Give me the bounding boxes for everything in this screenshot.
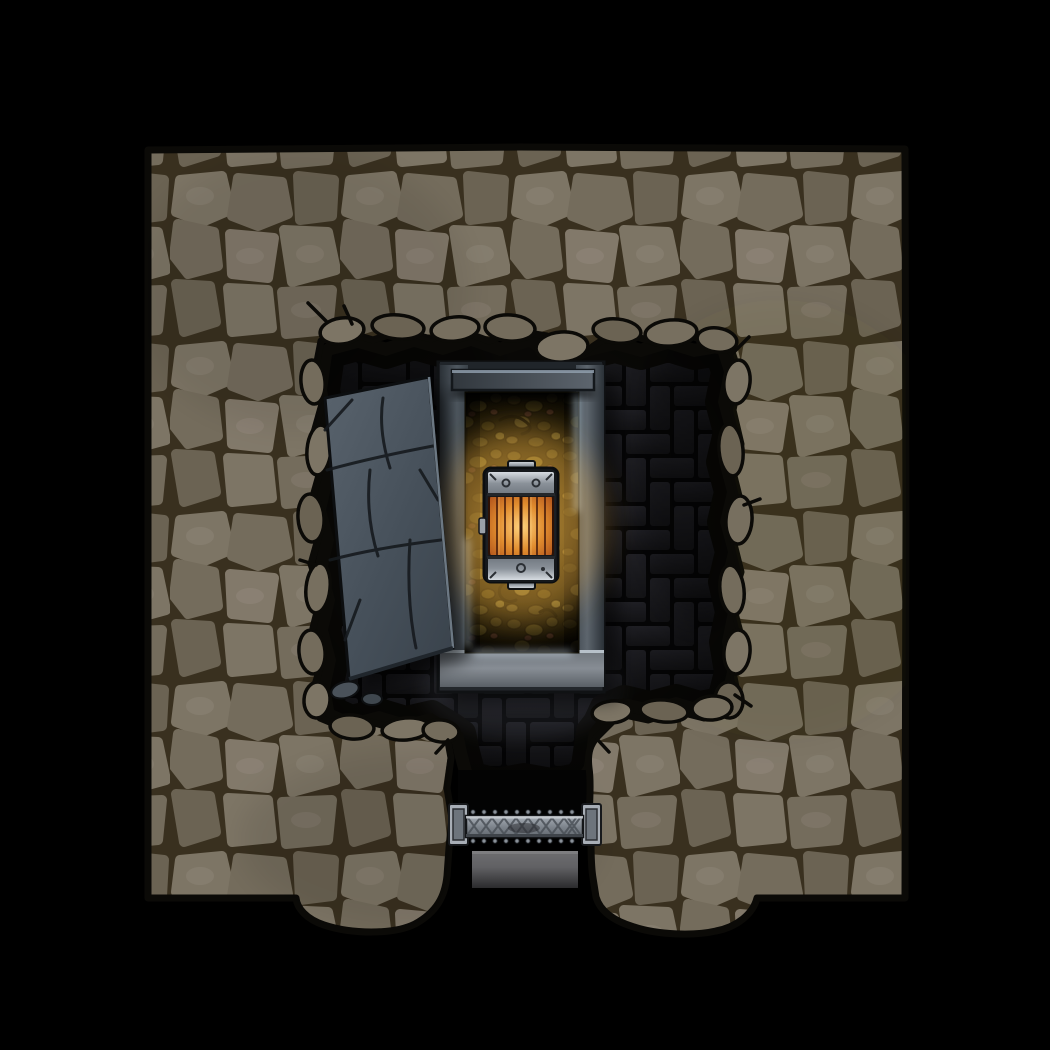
chest-side-clasp — [479, 518, 486, 534]
dungeon-map — [0, 0, 1050, 1050]
chest-bottom-band — [487, 556, 555, 581]
sarcophagus-header-slab — [452, 370, 594, 398]
wooden-chest[interactable] — [436, 427, 606, 623]
chest-top-band — [487, 471, 555, 496]
door-right-jamb — [582, 804, 601, 845]
south-corridor — [458, 770, 590, 948]
slab-fragment — [362, 693, 382, 705]
door-bar — [466, 816, 583, 837]
dungeon-map-stage — [0, 0, 1050, 1050]
sarcophagus-lid-slab[interactable] — [325, 377, 467, 705]
